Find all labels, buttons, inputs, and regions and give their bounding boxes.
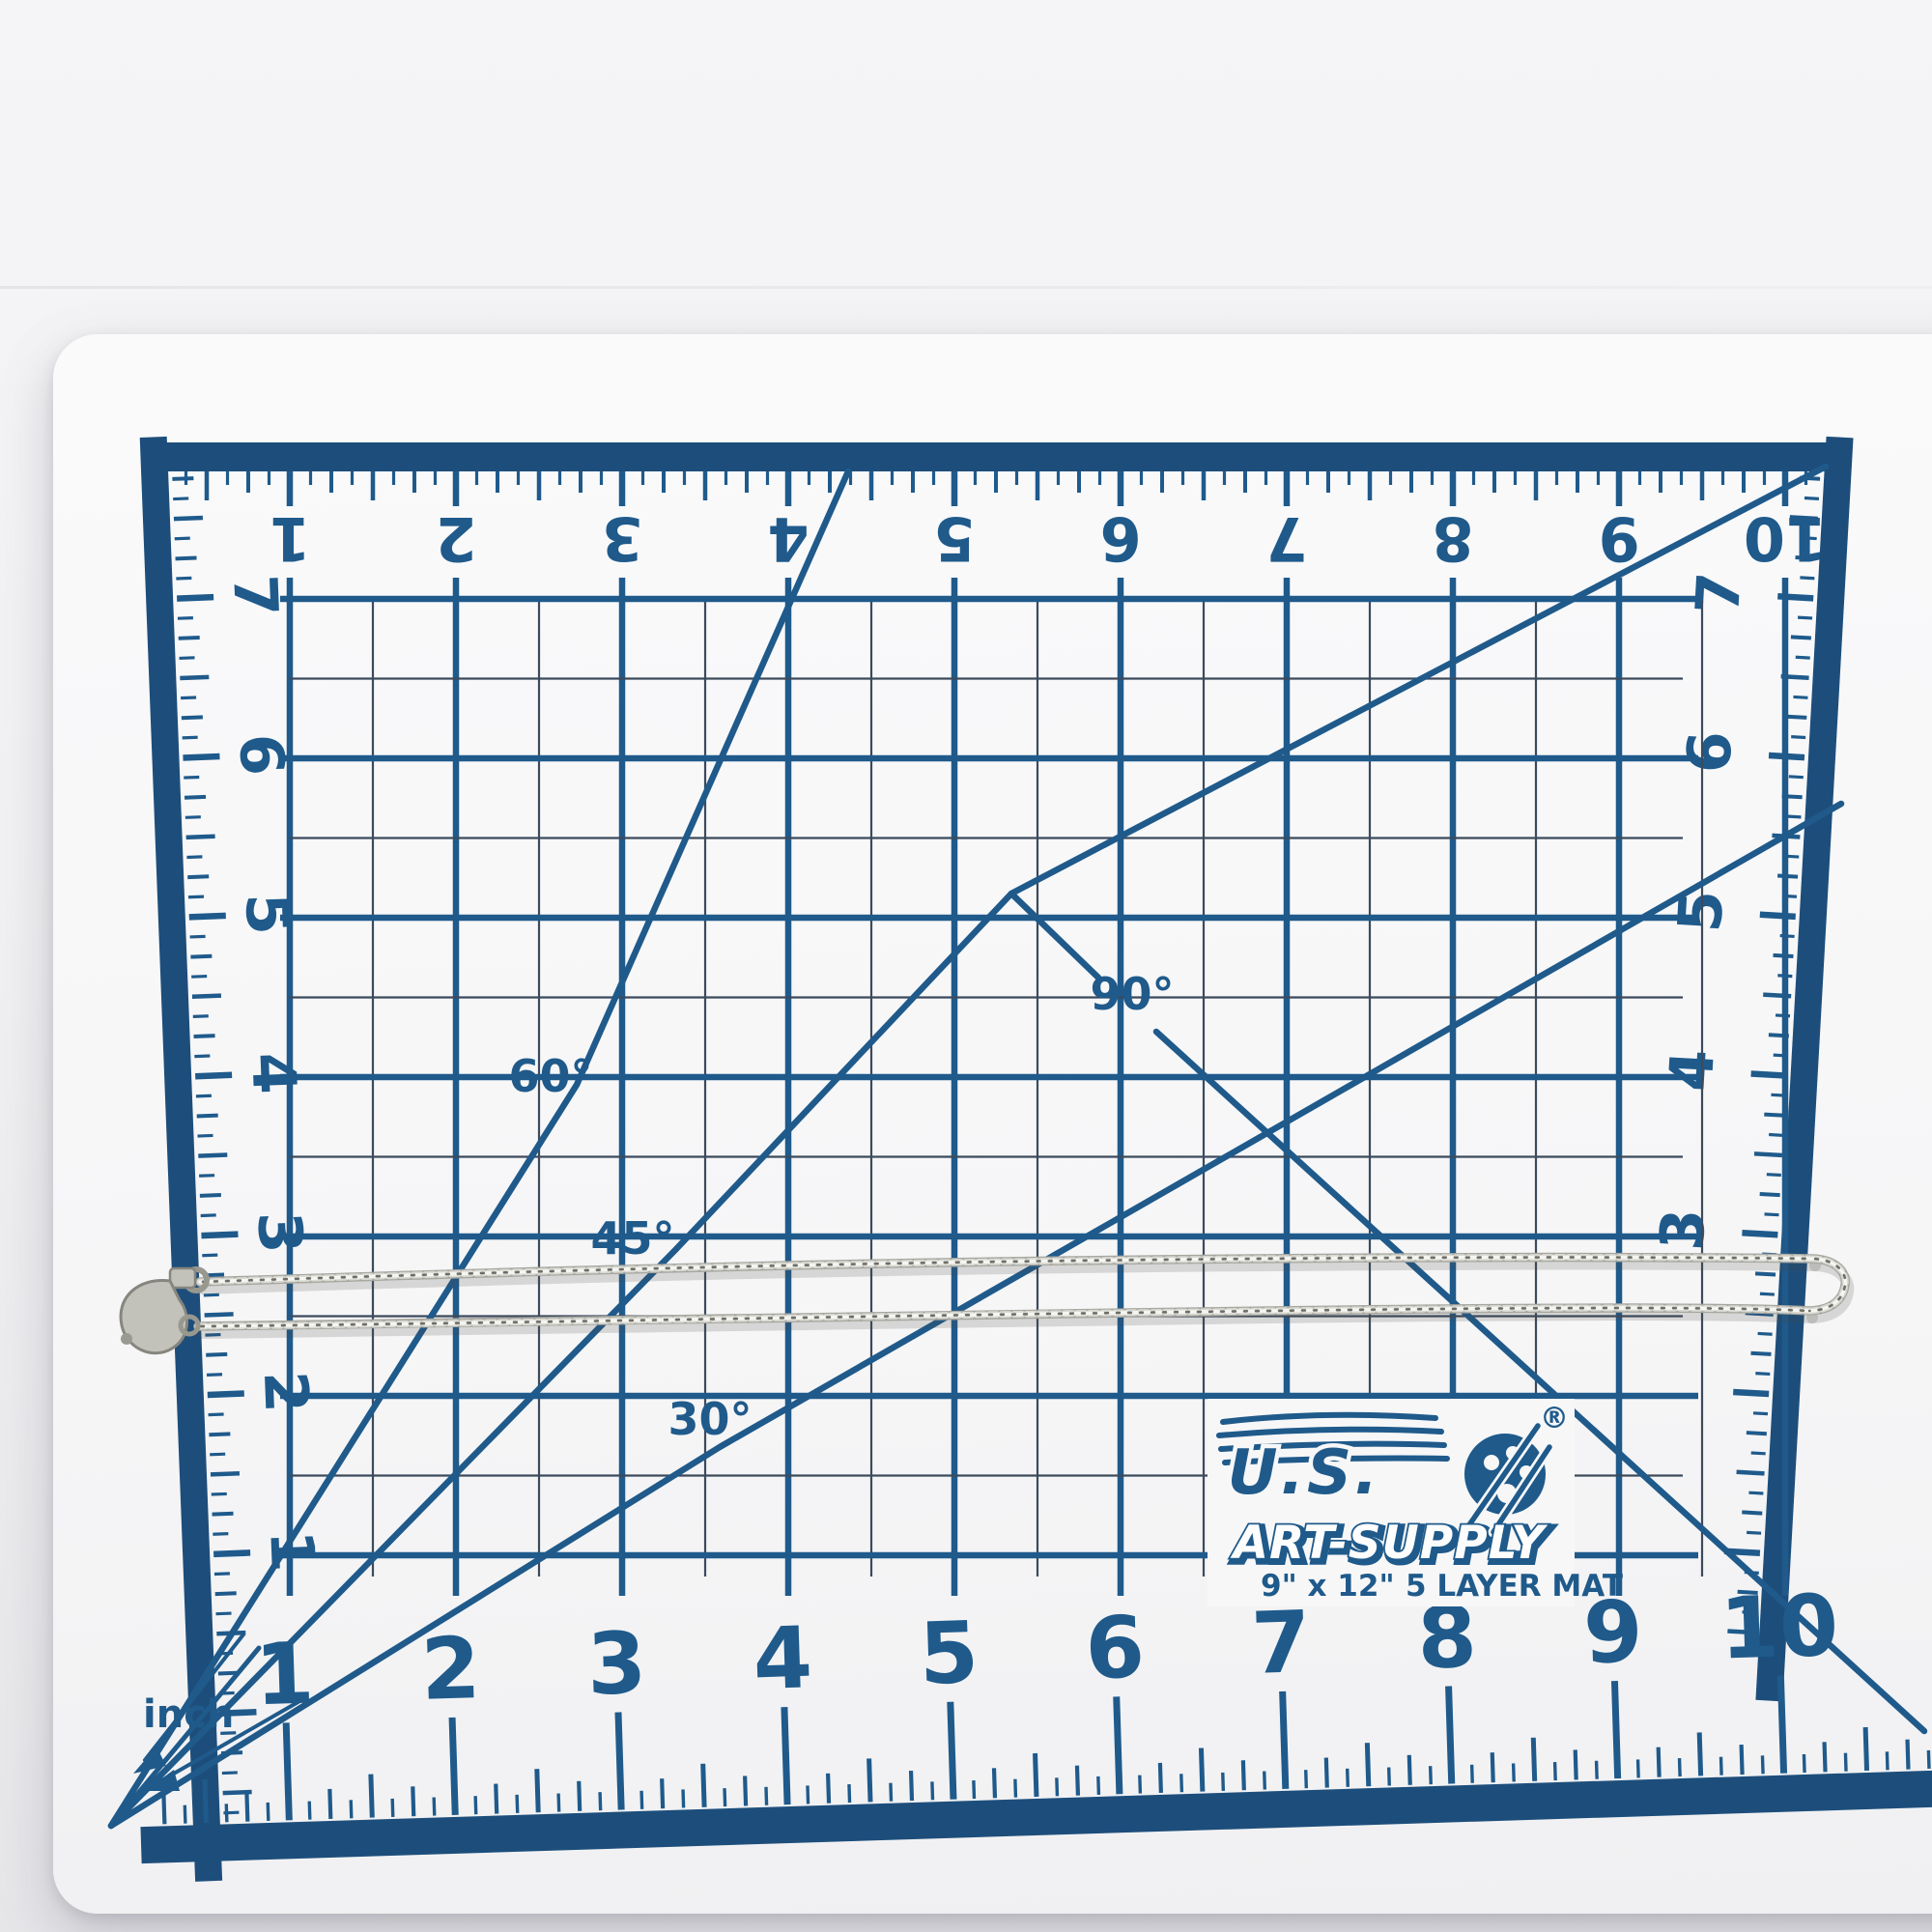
rope-chain xyxy=(198,1258,1848,1333)
lobster-clasp xyxy=(121,1268,207,1353)
silver-rope-chain-necklace xyxy=(0,0,1932,1932)
clasp-trigger xyxy=(121,1333,132,1345)
photo-scene: 123456789107654321765431234567891090°60°… xyxy=(0,0,1932,1932)
clasp-connector xyxy=(170,1268,195,1288)
